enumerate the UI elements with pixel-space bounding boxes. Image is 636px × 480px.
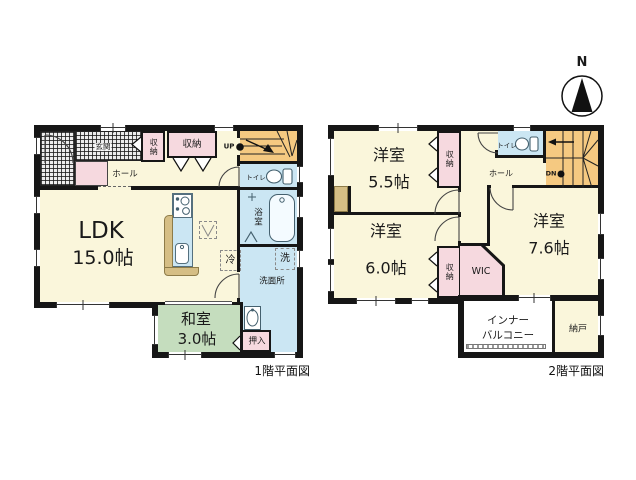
f1-window-washitsu-bottom xyxy=(168,352,202,358)
f1-genkan-tile-tall xyxy=(40,131,75,186)
f1-wall-stairs-a xyxy=(237,131,240,138)
f1-bathtub xyxy=(269,194,295,242)
f2-wall-hall-stairs xyxy=(543,131,546,163)
f2-room55-size: 5.5帖 xyxy=(368,175,409,192)
f2-window-60-bottom-a xyxy=(356,298,396,304)
f1-entry-step xyxy=(75,161,108,186)
f2-window-top-55 xyxy=(378,125,418,131)
f1-wall-bath-wash xyxy=(240,244,297,247)
f1-window-left-ldk-a xyxy=(34,196,40,214)
caption-floor1: 1階平面図 xyxy=(228,362,310,379)
f2-balcony-line1: インナー xyxy=(487,315,529,326)
f1-window-bath-right xyxy=(297,196,303,218)
f2-window-left-60b xyxy=(328,264,334,292)
f1-wall-right xyxy=(297,125,303,358)
f1-closet-b-label: 収納 xyxy=(182,140,201,150)
f1-kitchen-sink xyxy=(175,243,189,264)
f1-washitsu-label: 和室 xyxy=(181,312,211,328)
f1-wall-hall-ldk-a xyxy=(40,186,98,190)
f1-stairs xyxy=(240,131,297,161)
f1-wall-ldk-wash-a xyxy=(237,190,240,272)
f1-wall-washitsu-right xyxy=(240,305,243,352)
f2-wall-balcony-left xyxy=(458,298,464,354)
f2-wall-76-top-b xyxy=(512,185,598,188)
f2-wall-corr-left-b xyxy=(458,213,461,217)
f1-hatch-symbol xyxy=(199,221,217,239)
f2-wall-corr-right xyxy=(487,188,490,246)
f1-fridge-label: 冷 xyxy=(226,255,236,266)
f2-room60-size: 6.0帖 xyxy=(365,261,406,278)
f2-room60-label: 洋室 xyxy=(370,224,402,241)
f1-window-wash-right xyxy=(297,250,303,268)
f1-counter-tan-left xyxy=(164,215,173,275)
f2-wall-balcony-nando xyxy=(552,298,555,352)
f2-window-left-60a xyxy=(328,228,334,260)
f2-window-76-right-b xyxy=(598,258,604,280)
f1-wall-hall-ldk-b xyxy=(131,186,240,190)
f2-window-top-hall xyxy=(513,125,531,131)
f2-closet-b-label: 収納 xyxy=(445,263,453,281)
f1-fusuma-slider xyxy=(165,301,232,305)
f2-balcony-line2: バルコニー xyxy=(482,330,534,341)
f2-room76-size: 7.6帖 xyxy=(528,241,569,258)
f2-wall-wic-right xyxy=(502,265,505,298)
f1-washer-label: 洗 xyxy=(280,254,290,265)
f2-wall-desk-right xyxy=(348,186,351,215)
compass-icon xyxy=(562,76,602,116)
f2-stairs xyxy=(546,131,598,188)
f2-wall-wic-top xyxy=(461,243,487,246)
f2-wall-top xyxy=(328,125,604,131)
f1-washroom-label: 洗面所 xyxy=(259,278,285,287)
f2-wall-bottom xyxy=(458,352,604,358)
f1-wall-stairs-toilet xyxy=(240,161,297,164)
f1-window-top-hall xyxy=(214,125,234,131)
f2-window-balcony-slider xyxy=(518,295,551,301)
f1-ldk-size: 15.0帖 xyxy=(72,249,133,269)
floorplan-canvas: 玄関 収納 収納 UP ホール トイレ 浴室 洗面所 洗 冷 LDK 15.0帖… xyxy=(0,0,636,480)
f2-wall-bottom-main xyxy=(328,298,464,304)
caption-floor2: 2階平面図 xyxy=(522,362,604,379)
f2-room76-label: 洋室 xyxy=(533,214,565,231)
f1-genkan-label: 玄関 xyxy=(95,143,112,151)
f2-nando-label: 納戸 xyxy=(569,325,587,334)
f1-oshiire-label: 押入 xyxy=(248,338,265,347)
f2-desk-counter xyxy=(334,186,348,212)
f1-wall-washitsu-a xyxy=(158,302,165,305)
f1-bath-label: 浴室 xyxy=(253,208,262,227)
f1-window-ldk-bottom xyxy=(56,302,110,308)
f2-wall-toilet-bottom xyxy=(498,155,543,158)
f1-window-toilet-right xyxy=(297,166,303,183)
f1-hall-label: ホール xyxy=(112,171,138,180)
f1-hall-ldk-opening xyxy=(98,186,131,190)
f1-window-left-ldk-b xyxy=(34,249,40,267)
f1-washitsu-size: 3.0帖 xyxy=(178,332,217,348)
f1-toilet-label: トイレ xyxy=(246,175,266,182)
f1-counter-tan-bottom xyxy=(164,267,199,276)
f2-wic-label: WIC xyxy=(472,267,491,277)
f1-closet-a-label: 収納 xyxy=(149,138,157,156)
f2-wall-76-top-a xyxy=(487,185,491,188)
f2-toilet-label: トイレ xyxy=(497,143,517,150)
f1-wall-toilet-bath xyxy=(240,187,297,190)
f1-window-top-genkan xyxy=(100,125,126,131)
f1-washbasin xyxy=(244,306,261,330)
f2-window-nando-right xyxy=(598,315,604,336)
f1-window-left-genkan xyxy=(34,137,40,155)
compass-n-label: N xyxy=(577,56,588,70)
f1-stove xyxy=(173,194,192,218)
f2-wall-toilet-left-stub xyxy=(495,150,498,158)
f1-window-washitsu-left xyxy=(152,315,158,345)
f1-up-label: UP xyxy=(224,143,235,150)
f2-balcony-rail xyxy=(466,344,546,349)
f2-hall-label: ホール xyxy=(489,170,513,178)
f2-wall-corr-left-a xyxy=(458,188,461,192)
f2-window-left-55 xyxy=(328,138,334,176)
f2-closet-a-label: 収納 xyxy=(445,150,453,168)
f2-dn-label: DN xyxy=(546,171,557,178)
f1-window-wash-bottom xyxy=(274,352,296,358)
f2-window-76-right-a xyxy=(598,213,604,235)
f1-ldk-label: LDK xyxy=(78,219,124,243)
f2-window-60-bottom-b xyxy=(411,298,429,304)
f1-wall-top xyxy=(34,125,303,131)
f2-room55-label: 洋室 xyxy=(373,148,405,165)
